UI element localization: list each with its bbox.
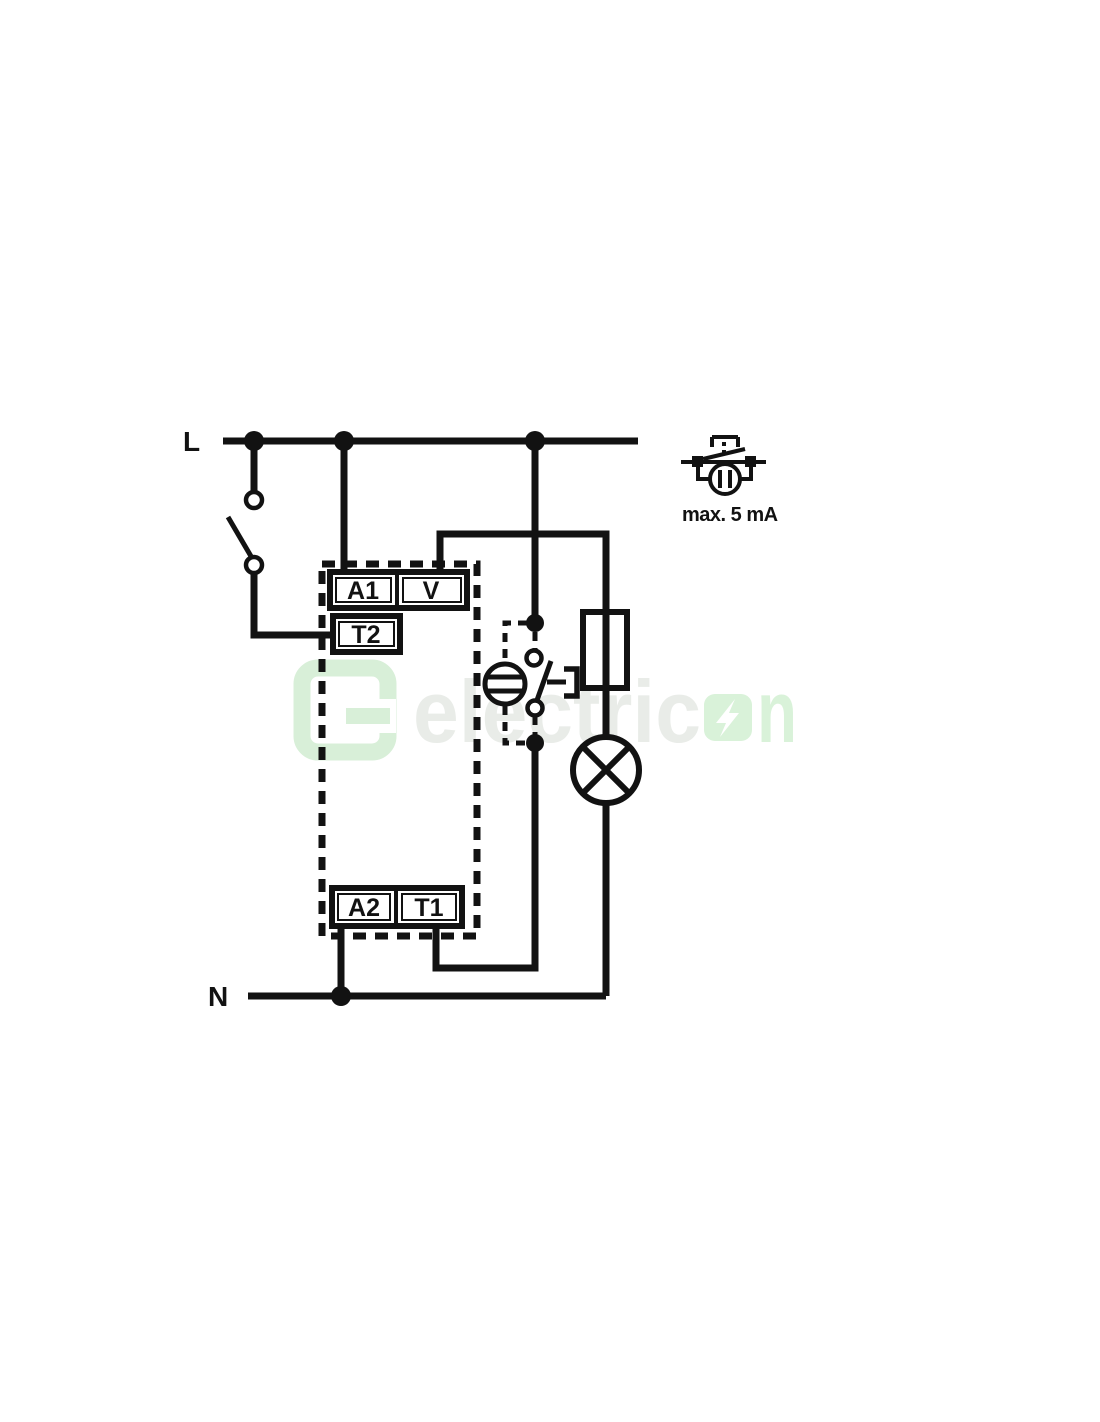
watermark-bolt-icon: [704, 694, 752, 741]
terminal-t1-label: T1: [414, 894, 443, 922]
terminal-t2-label: T2: [351, 621, 380, 649]
terminal-block-a2-t1: A2 T1: [332, 888, 462, 926]
terminal-v-label: V: [423, 577, 440, 605]
watermark-text-right: n: [757, 662, 797, 761]
terminal-block-t2: T2: [333, 616, 400, 652]
terminal-block-a1-v: A1 V: [330, 572, 467, 608]
load-lamp-symbol: [573, 737, 639, 996]
legend-glow-lamp-symbol: [710, 464, 740, 494]
terminal-a1-label: A1: [347, 577, 379, 605]
legend-caption: max. 5 mA: [682, 504, 778, 526]
watermark: electric n: [302, 662, 797, 761]
neutral-line-label: N: [208, 981, 228, 1012]
wall-switch-symbol: [228, 441, 334, 635]
watermark-text-left: electric: [413, 662, 701, 761]
live-line-label: L: [183, 426, 200, 457]
terminal-a2-label: A2: [348, 894, 380, 922]
watermark-logo-icon: [302, 668, 396, 752]
neutral-line: [248, 986, 606, 1006]
legend-pushbutton-symbol: [681, 437, 766, 494]
live-line: [223, 431, 638, 451]
wiring-diagram-canvas: electric n L N A1 V: [0, 0, 1100, 1422]
glow-lamp-symbol: [485, 664, 525, 704]
